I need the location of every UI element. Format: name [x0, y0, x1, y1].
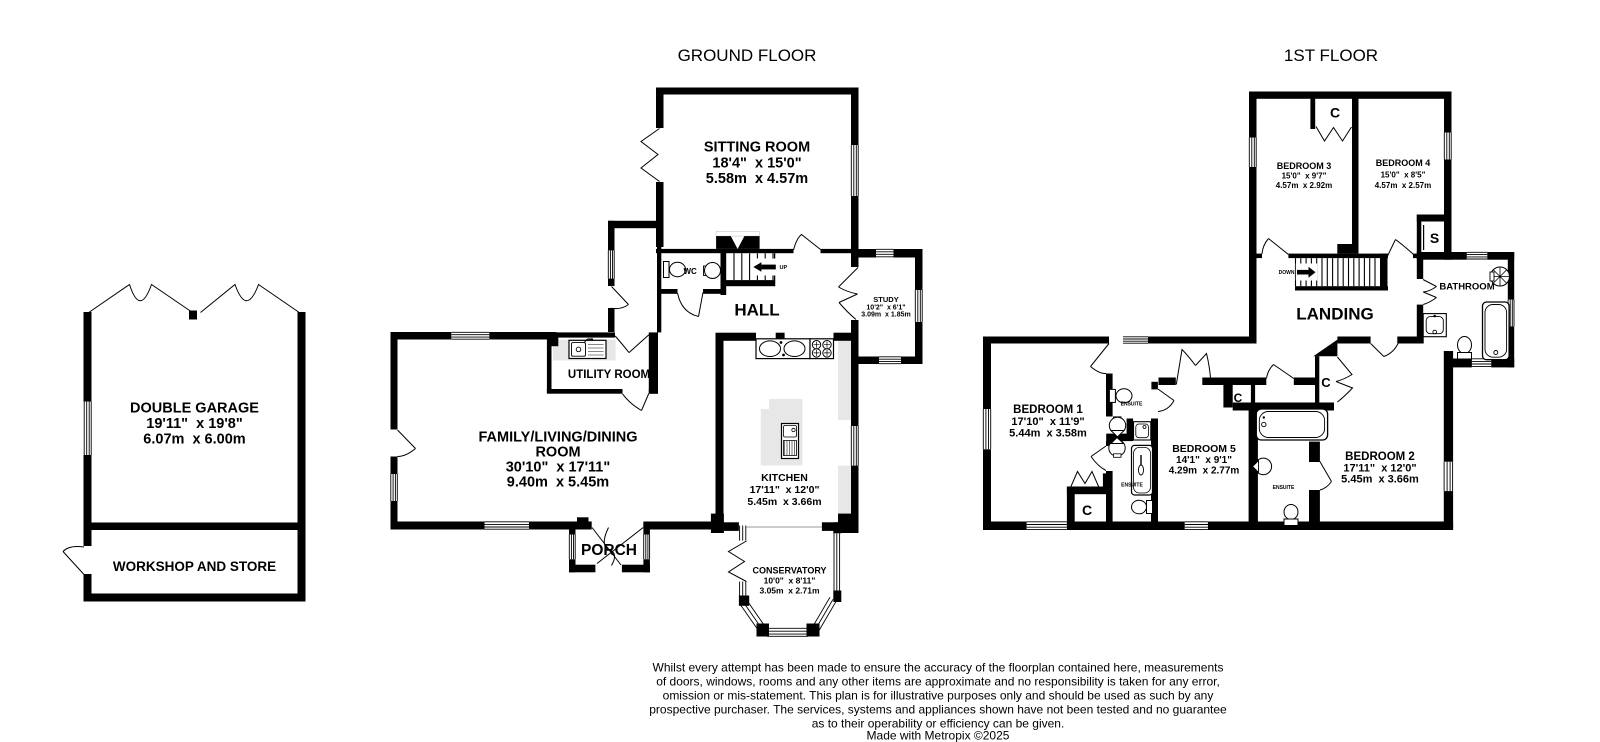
svg-text:WC: WC [684, 267, 698, 276]
svg-text:5.44m x 3.58m: 5.44m x 3.58m [1009, 428, 1087, 440]
svg-text:C: C [1321, 375, 1331, 390]
svg-text:C: C [1234, 391, 1243, 405]
svg-text:BATHROOM: BATHROOM [1439, 282, 1494, 293]
svg-text:of doors, windows, rooms and a: of doors, windows, rooms and any other i… [656, 675, 1220, 689]
svg-text:5.58m x 4.57m: 5.58m x 4.57m [706, 171, 808, 187]
svg-text:4.29m x 2.77m: 4.29m x 2.77m [1169, 466, 1240, 477]
svg-text:C: C [1082, 502, 1092, 518]
svg-text:ROOM: ROOM [535, 445, 580, 461]
svg-text:ENSUITE: ENSUITE [1121, 483, 1143, 489]
svg-text:10'2" x 6'1": 10'2" x 6'1" [866, 305, 905, 312]
svg-text:ENSUITE: ENSUITE [1121, 402, 1143, 408]
svg-text:FAMILY/LIVING/DINING: FAMILY/LIVING/DINING [479, 430, 638, 446]
svg-text:CONSERVATORY: CONSERVATORY [752, 566, 826, 576]
svg-text:BEDROOM 4: BEDROOM 4 [1376, 158, 1431, 168]
svg-text:1ST FLOOR: 1ST FLOOR [1284, 46, 1378, 65]
svg-text:BEDROOM 2: BEDROOM 2 [1345, 451, 1415, 463]
svg-text:19'11" x 19'8": 19'11" x 19'8" [146, 416, 242, 432]
svg-text:14'1" x 9'1": 14'1" x 9'1" [1176, 455, 1232, 466]
svg-text:5.45m x 3.66m: 5.45m x 3.66m [1341, 474, 1419, 486]
svg-text:C: C [1330, 105, 1340, 121]
svg-text:UTILITY ROOM: UTILITY ROOM [568, 369, 650, 381]
svg-text:UP: UP [780, 265, 788, 271]
svg-text:9.40m x 5.45m: 9.40m x 5.45m [507, 475, 609, 491]
svg-text:S: S [1430, 230, 1439, 246]
svg-text:18'4" x 15'0": 18'4" x 15'0" [712, 156, 801, 172]
svg-text:STUDY: STUDY [873, 295, 898, 304]
svg-text:prospective purchaser. The ser: prospective purchaser. The services, sys… [649, 703, 1227, 717]
svg-text:DOUBLE GARAGE: DOUBLE GARAGE [130, 401, 259, 417]
svg-text:17'11" x 12'0": 17'11" x 12'0" [750, 484, 820, 496]
svg-text:BEDROOM 3: BEDROOM 3 [1277, 161, 1332, 171]
svg-text:Made with Metropix ©2025: Made with Metropix ©2025 [867, 729, 1010, 742]
svg-text:BEDROOM 1: BEDROOM 1 [1013, 404, 1083, 416]
svg-text:4.57m x 2.57m: 4.57m x 2.57m [1375, 181, 1431, 190]
svg-text:Whilst every attempt has been: Whilst every attempt has been made to en… [653, 661, 1224, 675]
svg-text:4.57m x 2.92m: 4.57m x 2.92m [1276, 181, 1332, 190]
svg-text:WORKSHOP AND STORE: WORKSHOP AND STORE [113, 559, 276, 574]
svg-text:3.09m x 1.85m: 3.09m x 1.85m [861, 312, 910, 319]
svg-text:6.07m x 6.00m: 6.07m x 6.00m [143, 432, 245, 448]
svg-text:BEDROOM 5: BEDROOM 5 [1172, 443, 1236, 455]
svg-text:GROUND FLOOR: GROUND FLOOR [678, 46, 817, 65]
svg-text:17'10" x 11'9": 17'10" x 11'9" [1011, 416, 1084, 428]
svg-text:DOWN: DOWN [1279, 270, 1295, 276]
svg-text:HALL: HALL [734, 301, 779, 320]
svg-text:5.45m x 3.66m: 5.45m x 3.66m [747, 496, 821, 508]
svg-text:LANDING: LANDING [1296, 305, 1373, 324]
svg-text:30'10" x 17'11": 30'10" x 17'11" [506, 460, 611, 476]
svg-text:KITCHEN: KITCHEN [761, 472, 808, 484]
svg-text:10'0" x 8'11": 10'0" x 8'11" [764, 576, 816, 586]
svg-text:SITTING ROOM: SITTING ROOM [704, 140, 810, 156]
svg-text:omission or mis-statement. Thi: omission or mis-statement. This plan is … [663, 689, 1214, 703]
svg-text:15'0" x 8'5": 15'0" x 8'5" [1381, 171, 1426, 180]
svg-text:PORCH: PORCH [581, 542, 637, 559]
svg-text:3.05m x 2.71m: 3.05m x 2.71m [759, 586, 819, 596]
svg-text:15'0" x 9'7": 15'0" x 9'7" [1282, 172, 1327, 181]
svg-text:ENSUITE: ENSUITE [1273, 485, 1295, 491]
